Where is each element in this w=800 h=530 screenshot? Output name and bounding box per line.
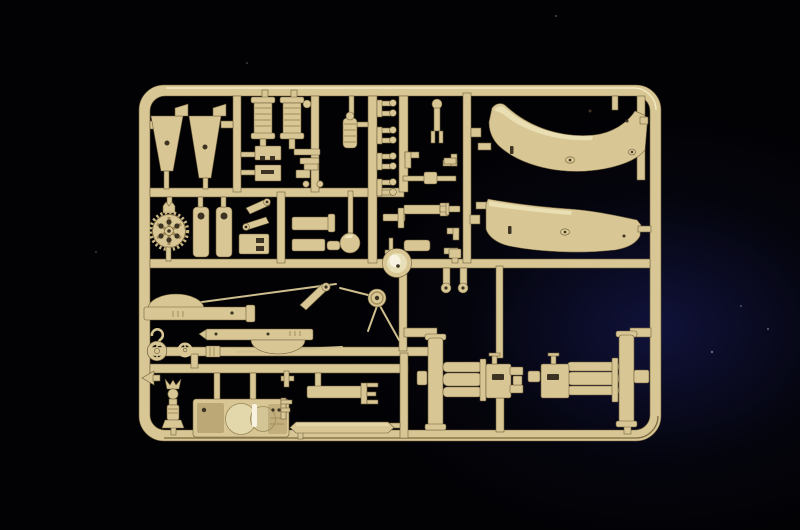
product-photo (0, 0, 800, 530)
ribbed-cylinder (343, 112, 357, 148)
trail-bar (290, 422, 394, 433)
pulley-wheel (368, 289, 386, 307)
handwheel-large (147, 341, 167, 361)
gun-cradle (193, 399, 289, 437)
ribbed-coupler (206, 346, 220, 357)
shovel (340, 191, 360, 253)
stowage-box (239, 234, 269, 254)
trail-spade-left (193, 197, 209, 257)
handwheel-small (179, 344, 191, 356)
gun-shield-lower (476, 199, 651, 252)
spoked-gearwheel (151, 197, 188, 261)
equilibrator-bar (281, 371, 378, 419)
trail-spade-right (216, 197, 232, 257)
trail-leg-right (189, 104, 226, 189)
recoil-assembly-right (513, 331, 649, 427)
spring-clips (377, 100, 396, 196)
sight-bracket (383, 208, 405, 254)
cable-drum-2 (280, 97, 304, 149)
barrel-sleeve-upper (144, 294, 255, 322)
road-wheel (383, 249, 412, 278)
elevation-column (162, 379, 184, 428)
sprue-photo-canvas (0, 0, 800, 530)
angled-levers (243, 199, 271, 231)
axle-slabs (292, 214, 340, 251)
equipment-boxes (255, 146, 281, 181)
trail-leg-left (151, 104, 188, 189)
cable-drum-1 (251, 97, 275, 149)
recoil-assembly-left (417, 334, 523, 430)
gun-shield-upper (478, 96, 648, 171)
